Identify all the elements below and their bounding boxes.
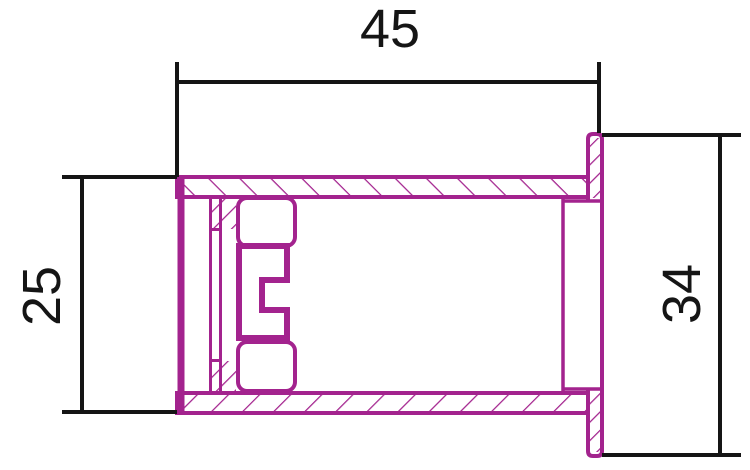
nut-block-top (238, 198, 295, 246)
technical-drawing: 45 25 34 (0, 0, 750, 470)
top-wall-hatch (177, 177, 588, 197)
sleeve-hatch-bottom (209, 361, 236, 392)
dimension-flange-height: 34 (602, 135, 741, 455)
dimension-overall-length: 45 (177, 0, 599, 177)
flange-hatch-bottom (589, 390, 601, 452)
dimension-body-height: 25 (12, 177, 177, 412)
part-section (177, 134, 602, 456)
flange-hatch-top (589, 138, 601, 198)
sleeve-hatch-top (209, 198, 236, 229)
bottom-wall-hatch (177, 393, 588, 413)
drawing-canvas: 45 25 34 (0, 0, 750, 470)
clip-profile (239, 246, 287, 338)
dimension-45-label: 45 (360, 0, 420, 59)
dimension-34-label: 34 (652, 264, 712, 324)
dimension-25-label: 25 (12, 266, 72, 326)
nut-block-bottom (238, 342, 295, 391)
